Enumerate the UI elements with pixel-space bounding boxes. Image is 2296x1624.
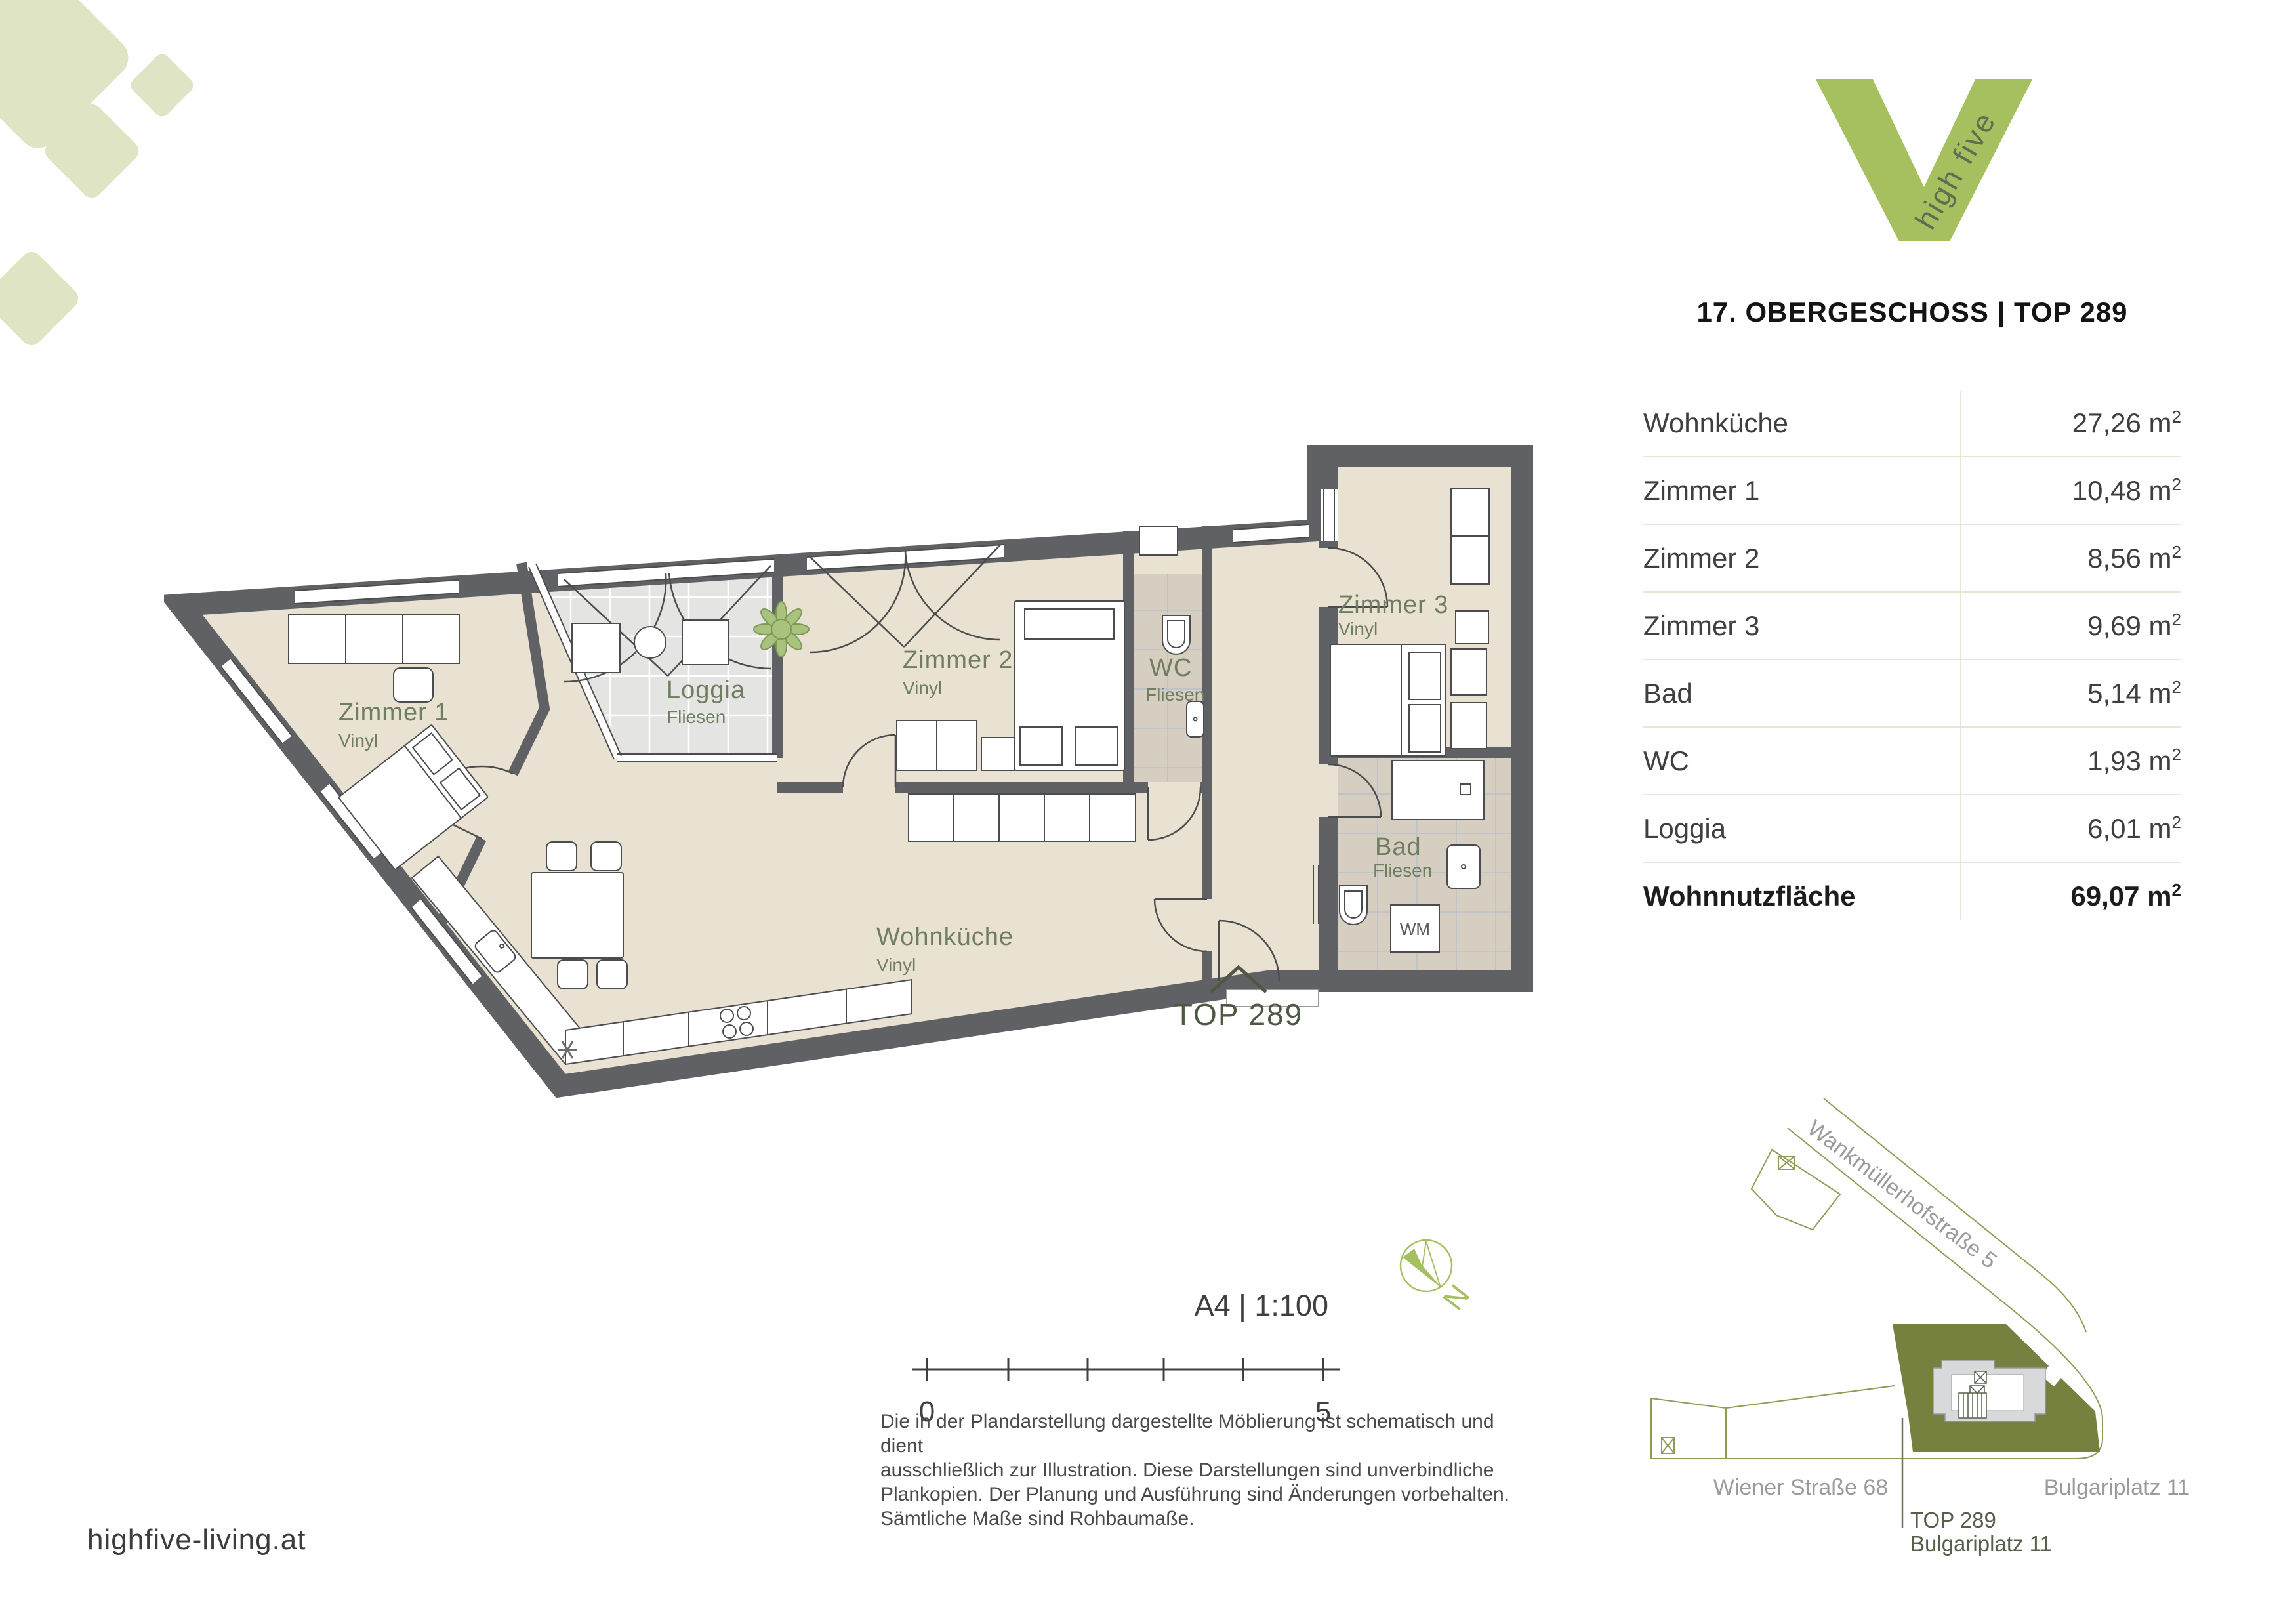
- bed-zimmer2: [1015, 601, 1124, 770]
- callout-unit: TOP 289: [1910, 1508, 1996, 1532]
- room-area: 69,07 m2: [2070, 880, 2181, 912]
- bed-zimmer3: [1330, 644, 1446, 756]
- washbasin: [1447, 845, 1480, 888]
- north-arrow: N: [1384, 1220, 1496, 1352]
- table-row: Loggia6,01 m2: [1643, 795, 2181, 863]
- toilet: [1340, 886, 1367, 925]
- decor-diamonds: [0, 0, 302, 407]
- wardrobe: [1451, 489, 1489, 584]
- nightstand: [1451, 703, 1486, 749]
- callout-address: Bulgariplatz 11: [1910, 1531, 2052, 1556]
- room-label: Zimmer 1: [1643, 475, 1759, 507]
- floor-label: Vinyl: [1338, 619, 1378, 639]
- scale-line: [912, 1358, 1340, 1381]
- brand-logo: high five: [1797, 62, 2053, 259]
- floor-label: Fliesen: [1373, 860, 1432, 881]
- room-area: 6,01 m2: [2087, 812, 2181, 844]
- diamond-icon: [0, 247, 83, 350]
- plant-icon: [754, 602, 809, 657]
- stool: [981, 738, 1014, 770]
- floor-plan: Zimmer 1 Vinyl Loggia Fliesen Zimmer 2 V…: [164, 427, 1542, 1122]
- cabinet: [1456, 611, 1488, 644]
- shower: [1392, 760, 1484, 820]
- table-divider: [1960, 391, 1961, 920]
- room-label: Loggia: [1643, 813, 1726, 844]
- room-label: Wohnküche: [876, 923, 1014, 951]
- floor-label: Vinyl: [876, 955, 916, 975]
- street-label: Wankmüllerhofstraße 5: [1803, 1115, 2001, 1274]
- table-row: Bad5,14 m2: [1643, 660, 2181, 728]
- unit-label: TOP 289: [1174, 997, 1303, 1031]
- room-area: 27,26 m2: [2072, 407, 2181, 439]
- room-label: WC: [1643, 745, 1689, 777]
- room-label: Bad: [1643, 678, 1692, 709]
- diamond-icon: [128, 51, 197, 120]
- room-area: 8,56 m2: [2087, 542, 2181, 574]
- desk: [289, 615, 459, 663]
- washbasin: [1187, 701, 1204, 737]
- floor-label: Fliesen: [1145, 684, 1204, 705]
- room-area: 9,69 m2: [2087, 610, 2181, 642]
- loggia-bench: [572, 623, 620, 673]
- table-row: Wohnküche27,26 m2: [1643, 390, 2181, 457]
- room-label: Zimmer 1: [338, 699, 449, 726]
- wm-label: WM: [1400, 919, 1430, 939]
- disclaimer: Die in der Plandarstellung dargestellte …: [880, 1409, 1530, 1531]
- toilet: [1162, 615, 1190, 654]
- room-label: Zimmer 2: [1643, 543, 1759, 574]
- room-label: Zimmer 3: [1643, 610, 1759, 642]
- room-area: 10,48 m2: [2072, 474, 2181, 507]
- scale-label: A4 | 1:100: [1195, 1289, 1328, 1322]
- compass-needle-white-icon: [1422, 1241, 1441, 1287]
- room-label: Zimmer 3: [1338, 591, 1448, 619]
- disclaimer-line: Die in der Plandarstellung dargestellte …: [880, 1409, 1530, 1458]
- duct-niche: [1139, 526, 1178, 555]
- table-row-total: Wohnnutzfläche69,07 m2: [1643, 863, 2181, 929]
- street-label: Wiener Straße 68: [1713, 1475, 1888, 1500]
- site-plan: Wankmüllerhofstraße 5 Wiener Straße 68 B…: [1594, 1076, 2296, 1624]
- room-label: Wohnküche: [1643, 407, 1788, 439]
- wardrobe-row: [909, 794, 1136, 841]
- nightstand: [1451, 649, 1486, 695]
- street-label: Bulgariplatz 11: [2044, 1475, 2190, 1500]
- room-label: WC: [1149, 654, 1192, 682]
- room-label: Wohnnutzfläche: [1643, 881, 1856, 912]
- table-row: Zimmer 110,48 m2: [1643, 457, 2181, 525]
- room-area: 1,93 m2: [2087, 745, 2181, 777]
- chair: [394, 668, 433, 702]
- room-area: 5,14 m2: [2087, 677, 2181, 709]
- table-row: WC1,93 m2: [1643, 728, 2181, 795]
- area-table: Wohnküche27,26 m2 Zimmer 110,48 m2 Zimme…: [1643, 390, 2181, 929]
- website-link: highfive-living.at: [87, 1524, 306, 1556]
- room-label: Zimmer 2: [903, 646, 1013, 674]
- disclaimer-line: ausschließlich zur Illustration. Diese D…: [880, 1458, 1530, 1482]
- table-row: Zimmer 39,69 m2: [1643, 593, 2181, 660]
- floor-label: Fliesen: [666, 707, 726, 727]
- disclaimer-line: Plankopien. Der Planung und Ausführung s…: [880, 1482, 1530, 1507]
- page-title: 17. OBERGESCHOSS | TOP 289: [1643, 297, 2181, 328]
- dresser: [897, 720, 977, 770]
- north-label: N: [1436, 1278, 1476, 1316]
- disclaimer-line: Sämtliche Maße sind Rohbaumaße.: [880, 1507, 1530, 1531]
- room-label: Bad: [1375, 833, 1422, 861]
- loggia-table: [634, 627, 666, 658]
- floor-label: Vinyl: [338, 730, 378, 751]
- floor-label: Vinyl: [903, 678, 942, 698]
- room-label: Loggia: [666, 677, 745, 704]
- site-mini-plan: [1933, 1360, 2045, 1421]
- loggia-bench: [682, 620, 729, 665]
- table-row: Zimmer 28,56 m2: [1643, 525, 2181, 593]
- scale-bar: A4 | 1:100 0 5: [879, 1247, 1378, 1437]
